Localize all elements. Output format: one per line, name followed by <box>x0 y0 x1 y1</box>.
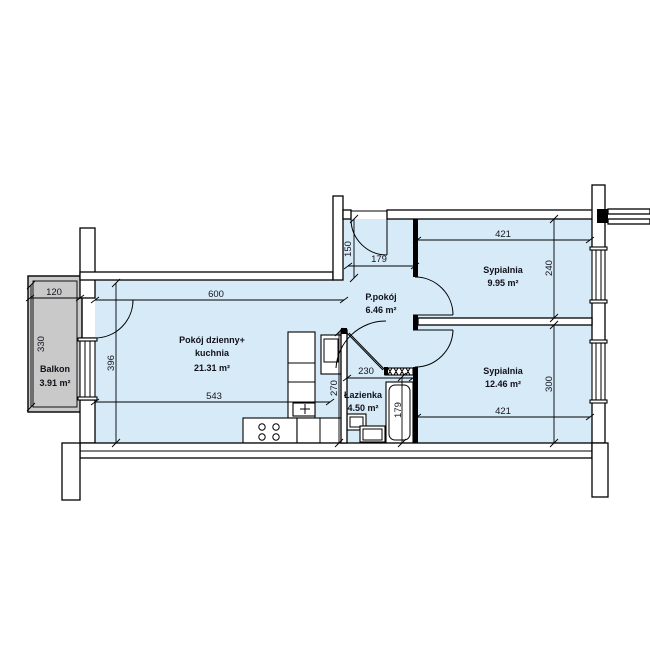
dim-bedroom2-width: 421 <box>495 406 511 417</box>
balcony-name: Balkon <box>40 364 70 374</box>
hall-name: P.pokój <box>365 292 396 302</box>
floor-plan: 120 330 600 396 543 150 179 421 240 421 … <box>0 0 650 650</box>
dim-bedroom1-width: 421 <box>495 229 511 240</box>
window-left <box>78 338 97 400</box>
dim-hall-entry-depth: 150 <box>343 241 354 257</box>
washing-machine <box>360 426 385 442</box>
ventilation-duct <box>321 335 341 374</box>
dim-bathtub-length: 179 <box>393 402 404 418</box>
stove <box>243 418 297 443</box>
living-room-name2: kuchnia <box>195 348 230 358</box>
window-bedroom1 <box>590 247 607 303</box>
kitchen-counter-bottom <box>297 418 345 443</box>
dim-balcony-depth: 330 <box>36 336 47 352</box>
dim-bathroom-width: 230 <box>358 366 374 377</box>
kitchen-counter <box>288 332 315 418</box>
dim-living-width-top: 600 <box>208 289 224 300</box>
hall-area: 6.46 m² <box>365 305 396 315</box>
bathroom-name: Łazienka <box>344 390 383 400</box>
dim-bedroom1-depth: 240 <box>544 260 555 276</box>
dim-living-depth: 396 <box>106 355 117 371</box>
bedroom1-area: 9.95 m² <box>487 278 518 288</box>
window-bedroom2 <box>590 340 607 403</box>
dim-hall-width: 179 <box>371 254 387 265</box>
dim-bedroom2-depth: 300 <box>544 376 555 392</box>
bedroom1-name: Sypialnia <box>483 265 524 275</box>
dim-living-width-bottom: 543 <box>206 391 222 402</box>
bedroom2-name: Sypialnia <box>483 366 524 376</box>
living-room-name: Pokój dzienny+ <box>179 335 245 345</box>
bathroom-area: 4.50 m² <box>347 403 378 413</box>
dim-bathroom-depth: 270 <box>329 380 340 396</box>
living-room-area: 21.31 m² <box>194 363 230 373</box>
bedroom2-area: 12.46 m² <box>485 379 521 389</box>
dim-balcony-width: 120 <box>46 287 62 298</box>
balcony-area: 3.91 m² <box>39 378 70 388</box>
